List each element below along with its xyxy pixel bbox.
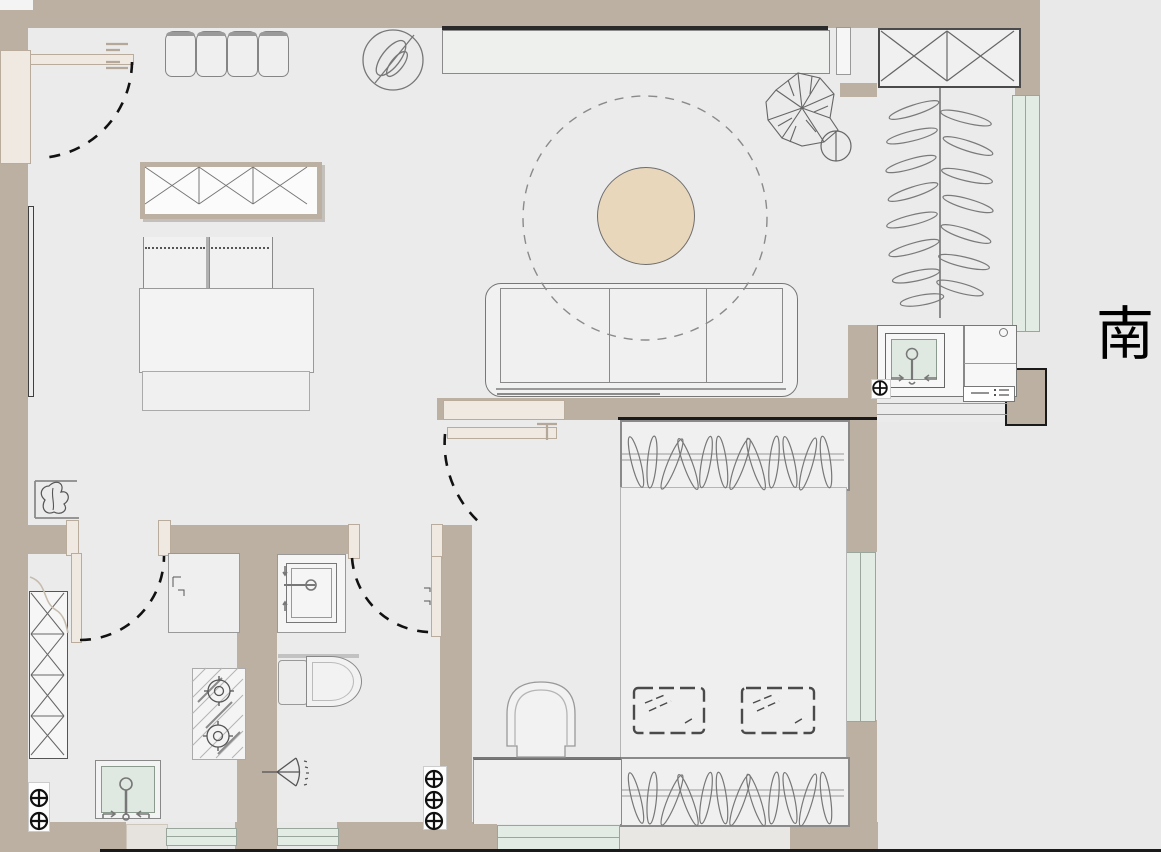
- counter-step-line: [877, 403, 1007, 404]
- bathroom-door-post-left: [348, 524, 360, 559]
- window-bottom-bath: [277, 828, 339, 846]
- chair-back: [166, 32, 195, 36]
- kitchen-counter-top: [168, 553, 240, 633]
- kitchen-door-leaf: [71, 553, 82, 643]
- window-bottom-kitchen: [166, 828, 237, 846]
- desk-base: [142, 371, 310, 411]
- sofa: [485, 283, 798, 397]
- desk-chair-right: [209, 237, 273, 289]
- sofa-seat: [500, 288, 783, 383]
- threshold: [126, 824, 168, 852]
- tv-console: [442, 30, 830, 74]
- vanity-basin-inner: [291, 568, 332, 618]
- desk-chair-dotline-left: [145, 247, 205, 249]
- wall-bottom-3: [337, 822, 497, 852]
- drain-box: [871, 379, 891, 399]
- exterior-ground: [877, 422, 1161, 852]
- chair-back: [259, 32, 288, 36]
- sofa-cushion-divider: [706, 289, 707, 382]
- wall-kitchenette-left: [848, 325, 877, 422]
- round-coffee-table: [597, 167, 695, 265]
- window-bedroom-right: [845, 552, 876, 722]
- floor-plan: 南: [0, 0, 1161, 852]
- wall-living-wet-2: [164, 525, 352, 554]
- wardrobe-topline: [618, 417, 877, 420]
- wall-panel-mirror: [28, 206, 34, 397]
- wall-bottom-1: [0, 822, 126, 852]
- entry-door-leaf: [30, 54, 134, 65]
- wall-bottom-2: [235, 822, 277, 852]
- drain-box: [423, 766, 447, 830]
- wall-top: [0, 0, 1037, 28]
- dining-chair-4: [258, 31, 289, 77]
- wall-tea-stub: [840, 83, 877, 97]
- console-end-slot: [836, 27, 851, 75]
- drain-box: [28, 782, 50, 832]
- kitchen-door-post-left: [66, 520, 79, 556]
- x-frame-console: [140, 162, 322, 219]
- bench: [473, 758, 621, 824]
- bedroom-door-opening: [443, 400, 565, 420]
- bathroom-door-post-right: [431, 524, 443, 559]
- toilet-tank: [278, 660, 308, 705]
- gas-stove: [192, 668, 246, 760]
- bed: [620, 487, 847, 759]
- wardrobe-top: [620, 420, 850, 491]
- counter-step-line: [877, 414, 1007, 415]
- chair-back: [228, 32, 257, 36]
- kitchen-basin: [101, 766, 155, 813]
- sofa-base-line: [496, 388, 786, 390]
- x-cabinet-top-right: [878, 28, 1021, 88]
- chair-back: [197, 32, 226, 36]
- compass-south-label: 南: [1096, 306, 1154, 364]
- counter-appliance: [963, 386, 1015, 402]
- dining-chair-3: [227, 31, 258, 77]
- desk: [139, 288, 314, 373]
- counter-knob: [999, 328, 1008, 337]
- counter-shelf-line: [964, 363, 1016, 364]
- window-bottom-bedroom: [497, 825, 620, 850]
- kitchen-door-post-right: [158, 520, 171, 556]
- bedroom-door-leaf: [447, 427, 557, 439]
- desk-chair-dotline-right: [211, 247, 269, 249]
- desk-chair-left: [143, 237, 209, 289]
- dining-chair-1: [165, 31, 196, 77]
- kitchen-sink: [95, 760, 161, 819]
- window-right: [1012, 95, 1040, 332]
- x-pantry: [29, 591, 68, 759]
- sofa-shadow-line: [497, 393, 660, 395]
- bed-foot-line: [473, 757, 621, 759]
- wall-corner-notch: [0, 0, 33, 10]
- kitchenette-sink: [885, 333, 945, 388]
- desk-chair-divider: [206, 237, 209, 288]
- dining-chair-2: [196, 31, 227, 77]
- sofa-cushion-divider: [609, 289, 610, 382]
- bathroom-door-leaf: [431, 556, 442, 637]
- wardrobe-bottom: [620, 757, 850, 827]
- kitchenette-basin: [891, 339, 937, 380]
- entry-door-frame: [0, 50, 31, 164]
